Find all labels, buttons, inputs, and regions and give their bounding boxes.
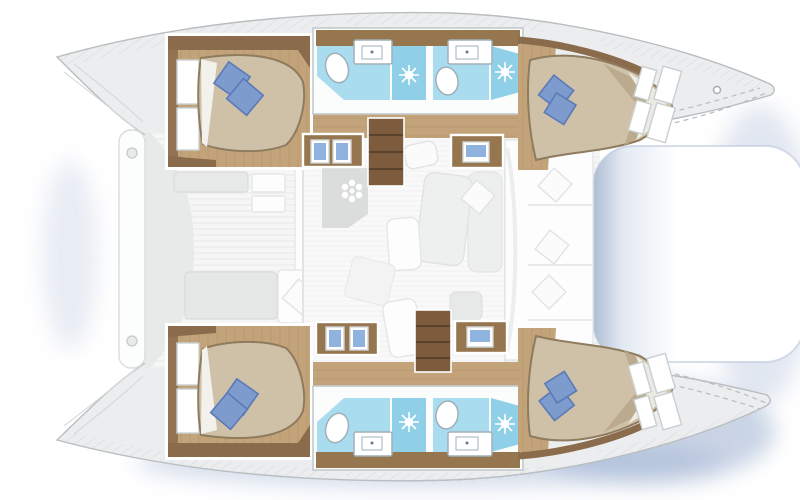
port-nav-desk	[451, 135, 503, 168]
vanity-sink	[314, 143, 326, 160]
forward-cockpit	[505, 140, 593, 360]
port-vanity	[303, 134, 363, 167]
cabin-port-aft	[165, 33, 313, 170]
cockpit-seat-2	[252, 196, 285, 212]
seat-pad	[450, 292, 482, 320]
head-divider-wall	[427, 398, 432, 452]
cockpit-seat-1	[252, 174, 285, 192]
davit-bar	[119, 130, 145, 368]
davit-fitting-top	[127, 148, 137, 158]
stairs-to-port-hull	[368, 118, 404, 186]
faucet-dot	[371, 51, 374, 54]
cockpit-table	[185, 272, 277, 319]
starboard-vanity	[316, 322, 378, 355]
port-bathrooms	[313, 28, 523, 114]
laptop-icon	[470, 330, 490, 342]
trampoline	[593, 146, 800, 362]
vanity-sink	[336, 143, 348, 160]
laptop-icon	[466, 145, 486, 157]
faucet-dot	[371, 442, 374, 445]
chaise-lounge	[415, 171, 474, 266]
headboard-slat	[177, 108, 199, 150]
davit-fitting-bottom	[127, 336, 137, 346]
stair-base	[415, 310, 451, 372]
vanity-counter	[316, 322, 378, 355]
floor-plan-image	[0, 0, 800, 500]
cabin-starboard-aft	[165, 323, 313, 460]
floor-plan-canvas	[0, 0, 800, 500]
head-divider-wall	[427, 46, 432, 100]
starboard-bathrooms	[313, 386, 523, 470]
shower-head-icon	[399, 412, 419, 432]
cockpit-bench-top	[174, 172, 248, 192]
starboard-nav-desk	[455, 321, 507, 353]
cabin-wall-fwd	[168, 443, 310, 457]
headboard-slat	[177, 60, 199, 104]
shower-head-icon	[495, 414, 515, 434]
headboard-slat	[177, 389, 199, 433]
faucet-dot	[466, 51, 469, 54]
headboard-slat	[177, 343, 199, 385]
vanity-sink	[353, 330, 365, 347]
vanity-sink	[329, 330, 341, 347]
recliner	[386, 217, 422, 271]
faucet-dot	[466, 442, 469, 445]
stairs-to-starboard-hull	[415, 310, 451, 372]
shower-head-icon	[495, 62, 515, 82]
shower-head-icon	[399, 65, 419, 85]
windlass-icon	[714, 87, 721, 94]
cabin-wall-fwd	[168, 36, 310, 50]
